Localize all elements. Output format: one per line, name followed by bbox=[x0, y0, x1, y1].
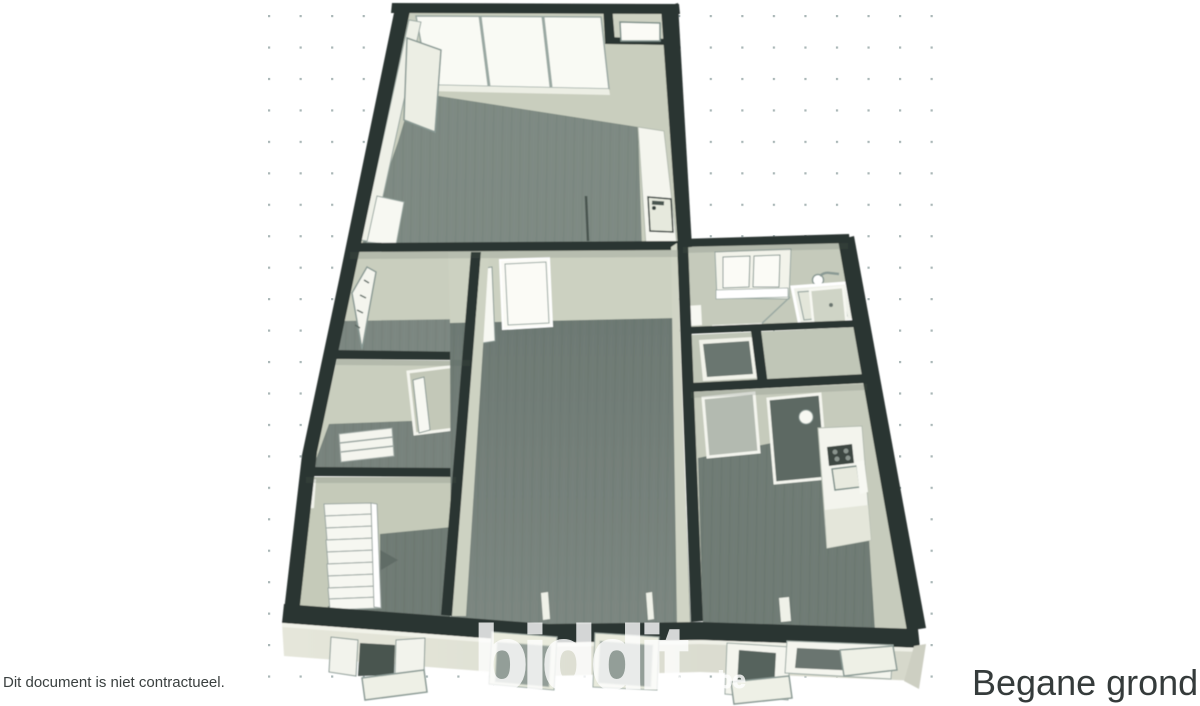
svg-text:biddit: biddit bbox=[474, 608, 688, 706]
svg-text:Begane grond: Begane grond bbox=[972, 662, 1198, 703]
svg-text:Dit document is niet contractu: Dit document is niet contractueel. bbox=[3, 674, 225, 691]
svg-text:.be: .be bbox=[711, 667, 746, 694]
